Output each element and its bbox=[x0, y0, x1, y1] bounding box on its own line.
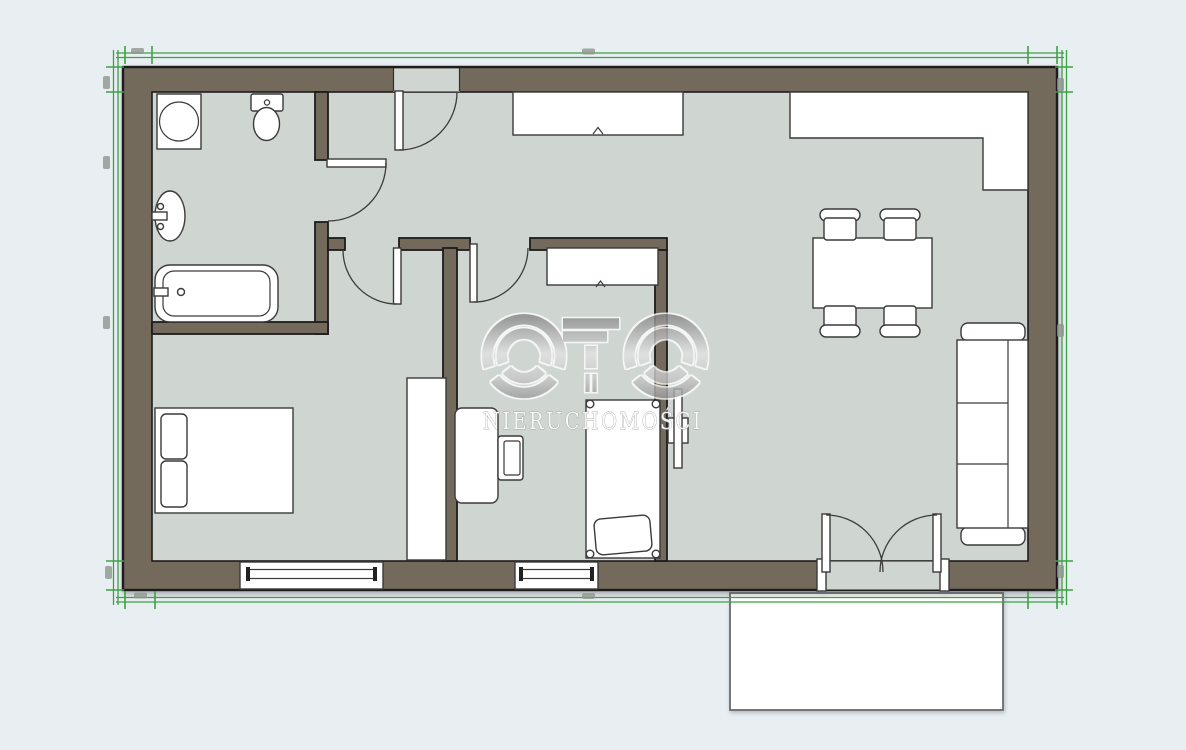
building-plan bbox=[123, 67, 1057, 591]
double-bed-icon bbox=[155, 408, 293, 513]
office-window bbox=[515, 562, 598, 589]
floor-plan-page: NIERUCHOMOŚCI bbox=[0, 0, 1186, 750]
washing-machine-icon bbox=[157, 94, 201, 149]
dining-table-icon bbox=[813, 238, 932, 308]
watermark-subtitle: NIERUCHOMOŚCI bbox=[483, 408, 703, 435]
desk-chair-icon bbox=[498, 436, 523, 480]
office-wardrobe-icon bbox=[547, 248, 658, 287]
bedroom-wardrobe-icon bbox=[407, 378, 446, 560]
dining-chair-icon bbox=[820, 209, 860, 240]
bedroom-window bbox=[240, 562, 383, 589]
terrace bbox=[730, 593, 1003, 710]
sofa-icon bbox=[957, 323, 1028, 545]
dining-chair-icon bbox=[880, 306, 920, 337]
dining-chair-icon bbox=[820, 306, 860, 337]
sideboard-icon bbox=[513, 92, 683, 135]
floor-plan: NIERUCHOMOŚCI bbox=[0, 0, 1186, 750]
entrance-opening bbox=[393, 68, 460, 92]
bathtub-icon bbox=[154, 265, 278, 322]
dining-chair-icon bbox=[880, 209, 920, 240]
